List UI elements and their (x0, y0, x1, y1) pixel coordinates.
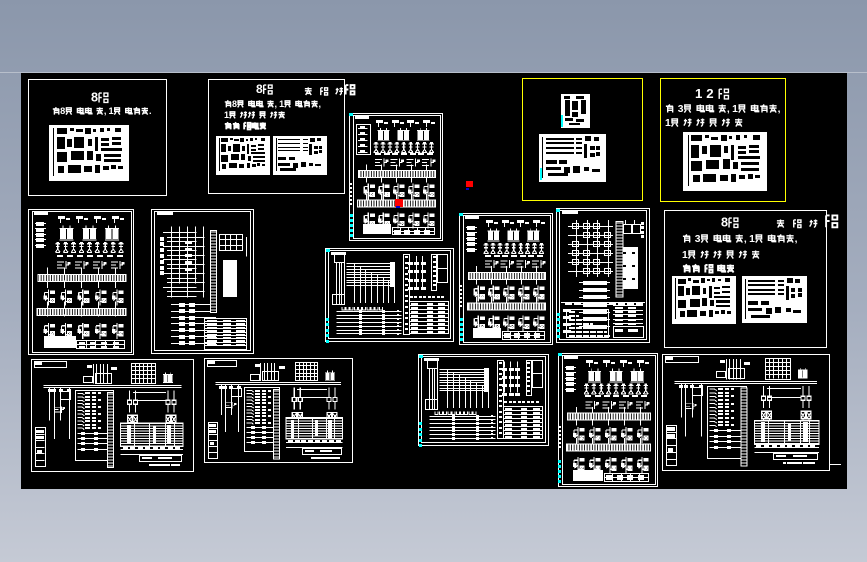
svg-text:1: 1 (665, 118, 671, 129)
svg-text:,: , (744, 234, 747, 245)
svg-text:,: , (778, 104, 781, 115)
svg-text:,: , (727, 104, 730, 115)
svg-text:,: , (104, 106, 107, 116)
svg-text:3: 3 (695, 234, 701, 245)
svg-text:1: 1 (749, 234, 755, 245)
svg-text:8: 8 (60, 106, 65, 116)
svg-text:,: , (319, 99, 322, 109)
svg-text:1: 1 (279, 99, 284, 109)
svg-text:2: 2 (706, 86, 713, 101)
svg-text:1: 1 (732, 104, 738, 115)
svg-text:,: , (795, 234, 798, 245)
svg-text:8: 8 (91, 91, 98, 105)
svg-text:8: 8 (721, 216, 728, 230)
svg-text:1: 1 (695, 86, 702, 101)
svg-text:3: 3 (678, 104, 684, 115)
svg-text:1: 1 (682, 250, 688, 261)
svg-text:.: . (149, 106, 152, 116)
svg-text:8: 8 (256, 82, 263, 96)
svg-text:1: 1 (224, 110, 229, 120)
svg-text:1: 1 (108, 106, 113, 116)
svg-text:8: 8 (232, 99, 237, 109)
svg-text:,: , (275, 99, 278, 109)
